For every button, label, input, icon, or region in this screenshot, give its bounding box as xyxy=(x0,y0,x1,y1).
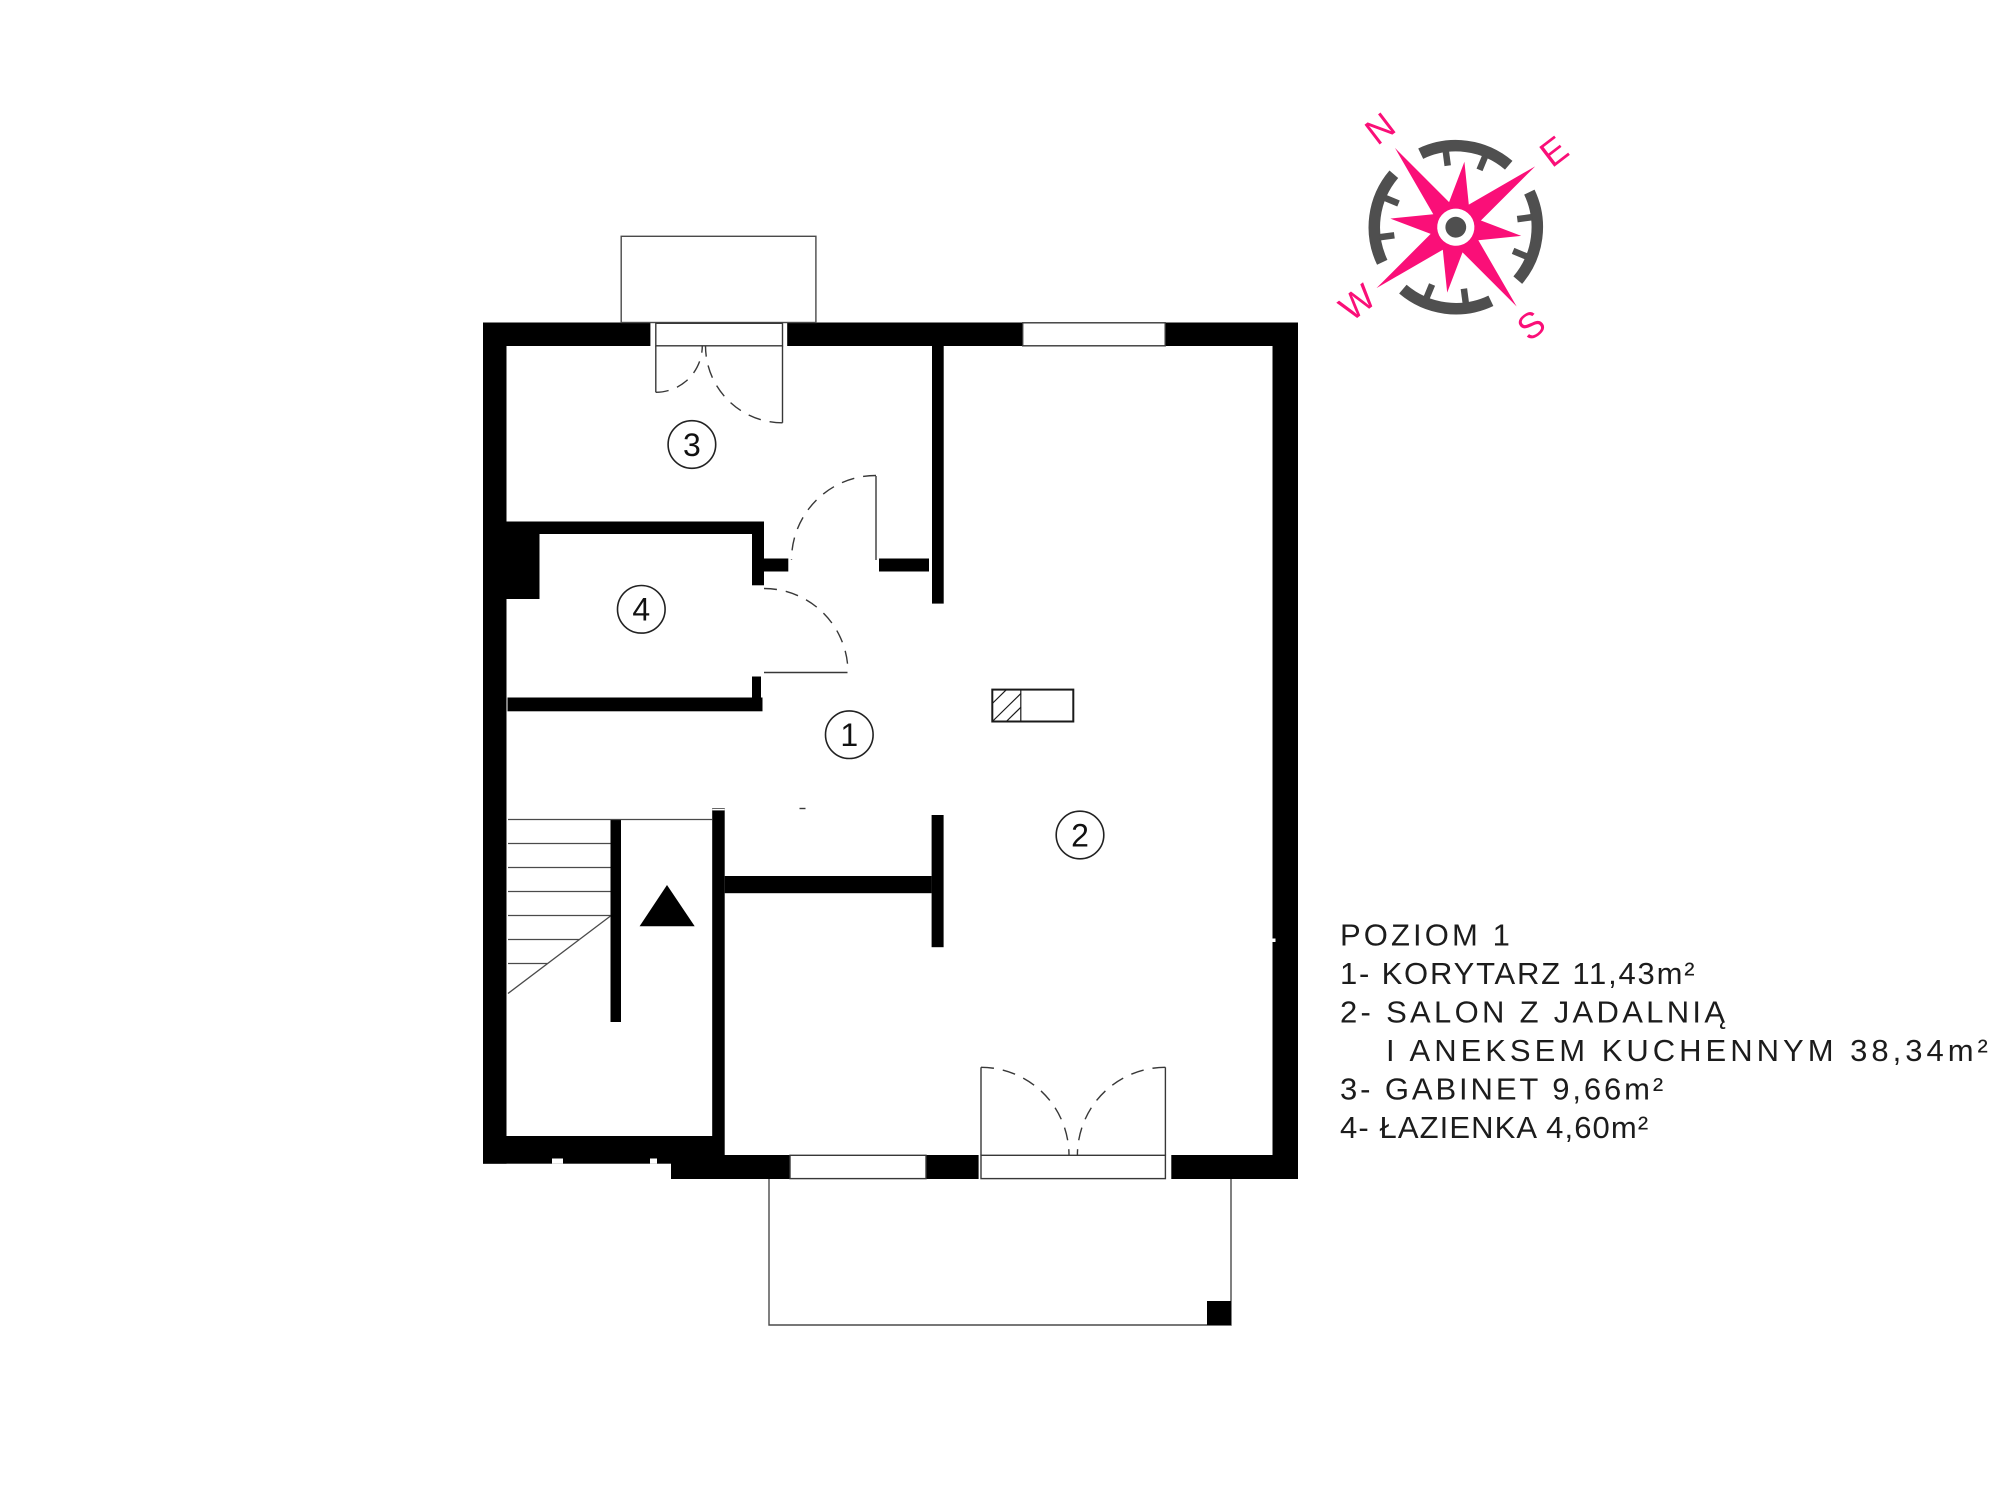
svg-text:N: N xyxy=(1357,104,1403,152)
svg-text:4: 4 xyxy=(632,592,650,628)
svg-text:3: 3 xyxy=(683,427,701,463)
svg-text:4- ŁAZIENKA 4,60m²: 4- ŁAZIENKA 4,60m² xyxy=(1340,1110,1649,1145)
svg-text:2: 2 xyxy=(1071,817,1089,853)
svg-text:I ANEKSEM KUCHENNYM 38,34m²: I ANEKSEM KUCHENNYM 38,34m² xyxy=(1386,1033,1992,1068)
svg-text:2- SALON Z JADALNIĄ: 2- SALON Z JADALNIĄ xyxy=(1340,995,1728,1030)
svg-text:W: W xyxy=(1331,276,1383,329)
svg-text:E: E xyxy=(1532,128,1576,175)
svg-text:1: 1 xyxy=(840,717,858,753)
svg-text:POZIOM 1: POZIOM 1 xyxy=(1340,918,1513,953)
svg-text:3- GABINET 9,66m²: 3- GABINET 9,66m² xyxy=(1340,1072,1666,1107)
svg-text:S: S xyxy=(1509,302,1553,349)
svg-text:1- KORYTARZ 11,43m²: 1- KORYTARZ 11,43m² xyxy=(1340,956,1696,991)
